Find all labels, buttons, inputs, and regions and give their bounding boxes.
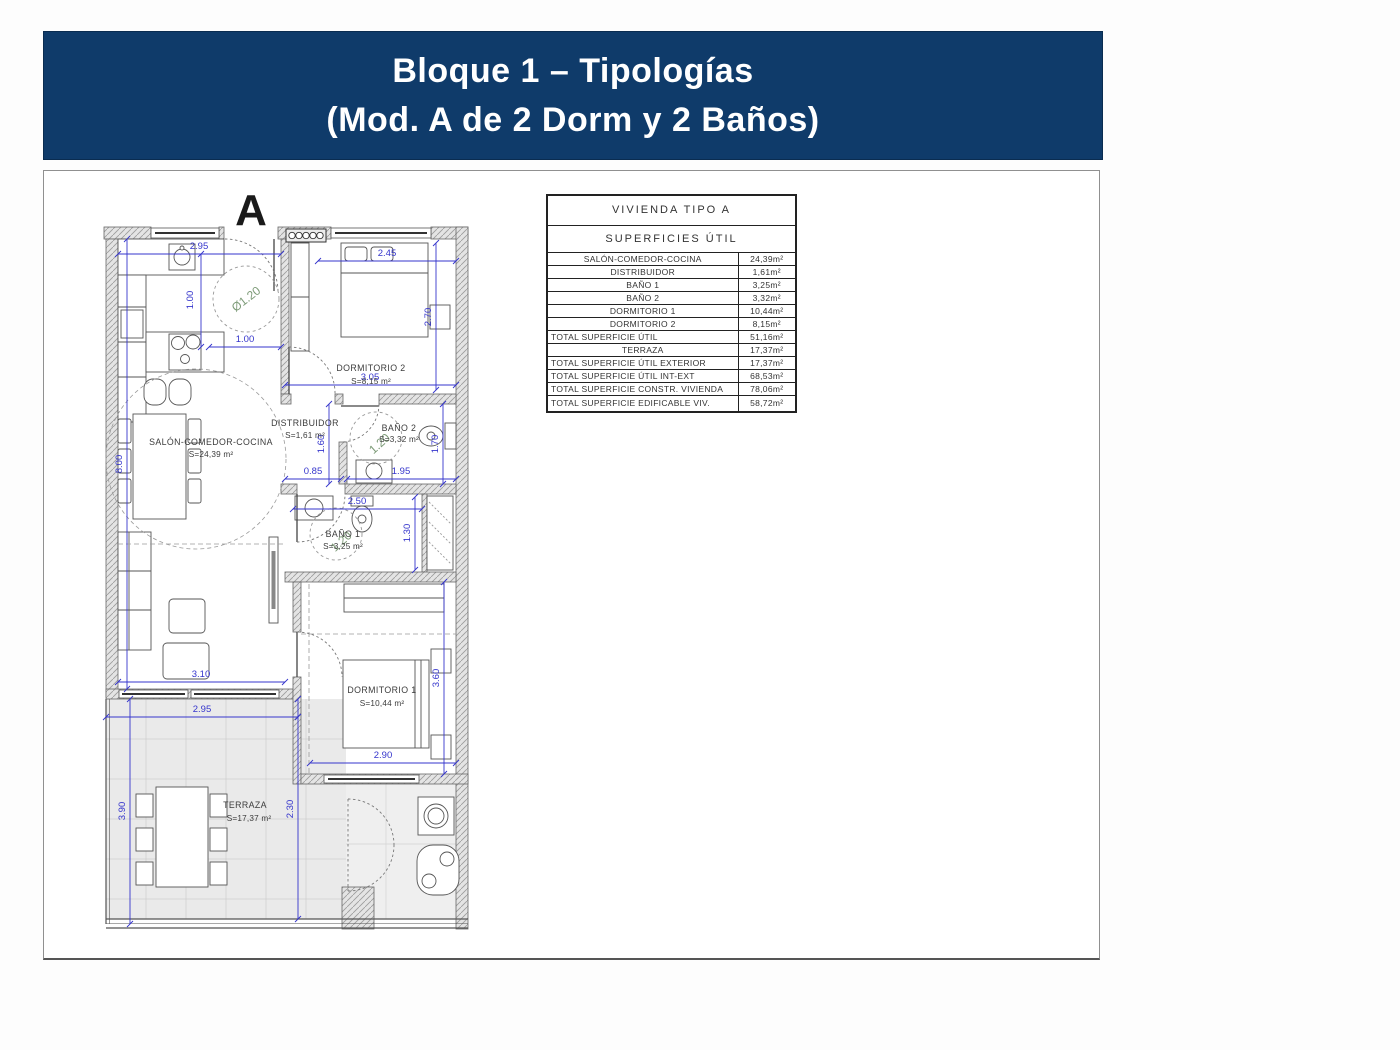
title-line-2: (Mod. A de 2 Dorm y 2 Baños) [326, 100, 819, 141]
table-row: TERRAZA 17,37m² [547, 343, 796, 356]
row-label: SALÓN-COMEDOR-COCINA [547, 252, 738, 265]
dim-bano2-height: 1.70 [430, 435, 441, 454]
dim-kitchen-pass: 1.00 [236, 334, 255, 345]
row-value: 3,32m² [738, 291, 796, 304]
row-label: TOTAL SUPERFICIE CONSTR. VIVIENDA [547, 382, 738, 395]
table-row: DISTRIBUIDOR 1,61m² [547, 265, 796, 278]
dorm2-label: DORMITORIO 2 [336, 363, 405, 373]
dim-dorm2-height: 2.70 [423, 308, 434, 327]
dim-dorm2-width: 2.45 [378, 248, 397, 259]
dim-bano1-height: 1.30 [402, 524, 413, 543]
block-letter: A [235, 187, 267, 235]
dim-terraza-height: 3.90 [117, 802, 128, 821]
row-value: 78,06m² [738, 382, 796, 395]
terraza-label: TERRAZA [223, 800, 267, 810]
dim-kitchen-depth: 1.00 [185, 291, 196, 310]
table-row-total: TOTAL SUPERFICIE ÚTIL 51,16m² [547, 330, 796, 343]
row-label: DORMITORIO 1 [547, 304, 738, 317]
dorm1-label: DORMITORIO 1 [347, 685, 416, 695]
row-value: 17,37m² [738, 343, 796, 356]
content-frame: A [43, 170, 1100, 960]
row-value: 1,61m² [738, 265, 796, 278]
row-label: TERRAZA [547, 343, 738, 356]
table-title-row: VIVIENDA TIPO A [547, 195, 796, 225]
row-label: BAÑO 1 [547, 278, 738, 291]
dim-distribuidor-width: 0.85 [304, 466, 323, 477]
dim-salon-width: 3.10 [192, 669, 211, 680]
terraza-furniture [136, 787, 227, 887]
slide: { "title": { "line1": "Bloque 1 – Tipolo… [0, 0, 1400, 1050]
table-row: SALÓN-COMEDOR-COCINA 24,39m² [547, 252, 796, 265]
dim-terraza-width: 2.95 [193, 704, 212, 715]
table-subtitle: SUPERFICIES ÚTIL [547, 225, 796, 252]
dim-bano2-width: 1.95 [392, 466, 411, 477]
table-row: BAÑO 1 3,25m² [547, 278, 796, 291]
dorm2-furniture [291, 243, 450, 351]
row-value: 10,44m² [738, 304, 796, 317]
dorm2-area: S=8,15 m² [351, 377, 391, 386]
table-row-total: TOTAL SUPERFICIE ÚTIL INT-EXT 68,53m² [547, 369, 796, 382]
row-label: TOTAL SUPERFICIE EDIFICABLE VIV. [547, 395, 738, 412]
vent-grille [286, 229, 326, 242]
table-row: DORMITORIO 1 10,44m² [547, 304, 796, 317]
title-banner: Bloque 1 – Tipologías (Mod. A de 2 Dorm … [43, 31, 1103, 160]
table-row: BAÑO 2 3,32m² [547, 291, 796, 304]
table-title: VIVIENDA TIPO A [547, 195, 796, 225]
dorm1-area: S=10,44 m² [360, 699, 405, 708]
row-value: 8,15m² [738, 317, 796, 330]
row-label: TOTAL SUPERFICIE ÚTIL [547, 330, 738, 343]
title-line-1: Bloque 1 – Tipologías [392, 51, 753, 92]
turning-circle-kitchen-label: Ø1.20 [229, 283, 264, 314]
terraza-area: S=17,37 m² [227, 814, 272, 823]
kitchen-window [151, 228, 219, 238]
row-value: 68,53m² [738, 369, 796, 382]
distribuidor-label: DISTRIBUIDOR [271, 418, 339, 428]
salon-windows [119, 690, 279, 698]
row-label: TOTAL SUPERFICIE ÚTIL EXTERIOR [547, 356, 738, 369]
table-row-total: TOTAL SUPERFICIE ÚTIL EXTERIOR 17,37m² [547, 356, 796, 369]
row-label: DISTRIBUIDOR [547, 265, 738, 278]
dim-kitchen-width: 2.95 [190, 241, 209, 252]
floor-plan: A [89, 187, 494, 939]
dim-dorm1-height: 3.60 [431, 669, 442, 688]
salon-area: S=24,39 m² [189, 450, 234, 459]
surfaces-table: VIVIENDA TIPO A SUPERFICIES ÚTIL SALÓN-C… [546, 194, 797, 413]
dorm1-window [324, 775, 419, 783]
table-row-total: TOTAL SUPERFICIE EDIFICABLE VIV. 58,72m² [547, 395, 796, 412]
row-value: 3,25m² [738, 278, 796, 291]
bano1-label: BAÑO 1 [326, 529, 361, 539]
row-value: 24,39m² [738, 252, 796, 265]
salon-label: SALÓN-COMEDOR-COCINA [149, 437, 273, 447]
row-label: DORMITORIO 2 [547, 317, 738, 330]
row-value: 58,72m² [738, 395, 796, 412]
dim-dorm1-width: 2.90 [374, 750, 393, 761]
row-value: 51,16m² [738, 330, 796, 343]
table-row: DORMITORIO 2 8,15m² [547, 317, 796, 330]
bano2-label: BAÑO 2 [382, 423, 417, 433]
bano1-fixtures [295, 496, 453, 570]
table-row-total: TOTAL SUPERFICIE CONSTR. VIVIENDA 78,06m… [547, 382, 796, 395]
dim-terraza-inner: 2.30 [285, 800, 296, 819]
row-label: TOTAL SUPERFICIE ÚTIL INT-EXT [547, 369, 738, 382]
dim-bano1-width: 2.50 [348, 496, 367, 507]
bano2-area: S=3,32 m² [379, 435, 419, 444]
dim-salon-height: 8.00 [114, 455, 125, 474]
bano1-area: S=3,25 m² [323, 542, 363, 551]
row-label: BAÑO 2 [547, 291, 738, 304]
salon-furniture [118, 532, 278, 679]
row-value: 17,37m² [738, 356, 796, 369]
distribuidor-area: S=1,61 m² [285, 431, 325, 440]
dorm2-window [331, 228, 431, 238]
table-subtitle-row: SUPERFICIES ÚTIL [547, 225, 796, 252]
